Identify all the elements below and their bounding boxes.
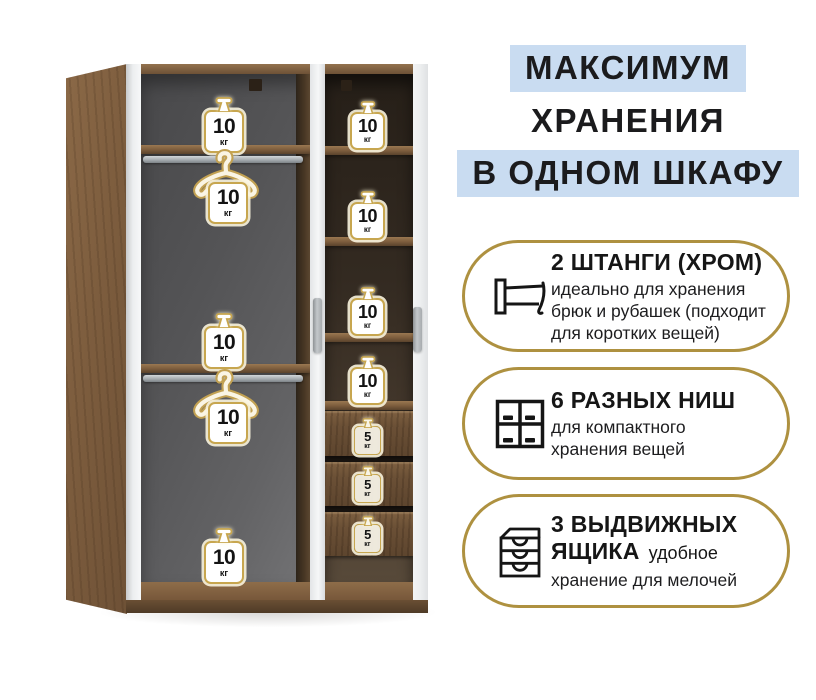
weight-capacity-label: 10кг <box>204 528 244 584</box>
hinge <box>341 80 352 91</box>
weight-unit: кг <box>224 208 232 218</box>
weight-value: 5 <box>364 479 371 491</box>
title-line-3: В ОДНОМ ШКАФУ <box>457 150 798 197</box>
feature-badge-niches: 6 РАЗНЫХ НИШ для компактного хранения ве… <box>462 367 790 480</box>
weight-value: 10 <box>358 304 377 321</box>
weight-knob-icon <box>359 418 377 428</box>
weight-capacity-label: 10кг <box>350 101 385 150</box>
weight-knob-icon <box>210 97 238 112</box>
wood-top-band <box>325 64 413 74</box>
weight-value: 10 <box>358 373 377 390</box>
page-title: МАКСИМУМ ХРАНЕНИЯ В ОДНОМ ШКАФУ <box>448 45 808 206</box>
weight-capacity-label: 10кг <box>350 356 385 405</box>
weight-unit: кг <box>364 443 370 451</box>
weight-knob-icon <box>359 466 377 476</box>
weight-value: 10 <box>217 188 239 208</box>
weight-value: 10 <box>358 208 377 225</box>
weight-knob-icon <box>356 356 380 369</box>
hanger-weight-label: 10кг <box>191 149 261 239</box>
weight-value: 10 <box>213 117 235 137</box>
feature-desc-inline: удобное <box>649 543 718 563</box>
feature-badge-rails: 2 ШТАНГИ (ХРОМ) идеально для хранения бр… <box>462 240 790 352</box>
weight-knob-icon <box>356 287 380 300</box>
weight-knob-icon <box>210 313 238 328</box>
hanger-weight-label: 10кг <box>191 369 261 459</box>
weight-unit: кг <box>220 568 228 578</box>
weight-unit: кг <box>364 390 371 399</box>
wardrobe-base <box>126 600 428 613</box>
weight-value: 10 <box>213 548 235 568</box>
feature-badge-drawers: 3 ВЫДВИЖНЫХ ЯЩИКАудобное хранение для ме… <box>462 494 790 608</box>
wardrobe-floor <box>325 582 413 600</box>
weight-unit: кг <box>220 137 228 147</box>
door-handle <box>313 298 322 353</box>
wardrobe-infographic: 10кг 10кг 10кг <box>0 0 816 700</box>
weight-unit: кг <box>364 491 370 499</box>
weight-value: 5 <box>364 529 371 541</box>
weight-knob-icon <box>356 101 380 114</box>
feature-title-line2: ЯЩИКАудобное <box>551 538 771 567</box>
feature-title-bold: ЯЩИКА <box>551 538 640 564</box>
weight-value: 10 <box>217 408 239 428</box>
drawer-weight-label: 5кг <box>354 418 381 455</box>
weight-unit: кг <box>364 135 371 144</box>
feature-desc-line: для компактного <box>551 416 771 438</box>
weight-capacity-label: 10кг <box>350 191 385 240</box>
clothes-rail-icon <box>489 273 551 319</box>
drawer-weight-label: 5кг <box>354 466 381 503</box>
weight-unit: кг <box>364 321 371 330</box>
weight-capacity-label: 10кг <box>204 97 244 153</box>
title-line-2: ХРАНЕНИЯ <box>448 101 808 141</box>
drawer-weight-label: 5кг <box>354 516 381 553</box>
weight-unit: кг <box>220 353 228 363</box>
feature-desc-line: для коротких вещей) <box>551 322 771 344</box>
weight-capacity-label: 10кг <box>204 313 244 369</box>
drawer-unit-icon <box>489 523 551 579</box>
weight-capacity-label: 10кг <box>350 287 385 336</box>
feature-desc-line: идеально для хранения <box>551 278 771 300</box>
wardrobe-floor <box>141 582 310 600</box>
feature-desc-line: хранение для мелочей <box>551 569 771 591</box>
door-handle <box>413 307 422 352</box>
weight-unit: кг <box>364 541 370 549</box>
weight-knob-icon <box>210 528 238 543</box>
title-line-1: МАКСИМУМ <box>510 45 746 92</box>
weight-value: 5 <box>364 431 371 443</box>
weight-knob-icon <box>356 191 380 204</box>
hinge <box>249 79 262 91</box>
feature-title: 6 РАЗНЫХ НИШ <box>551 387 771 414</box>
weight-knob-icon <box>359 516 377 526</box>
open-door-edge-left <box>126 64 141 613</box>
feature-title: 2 ШТАНГИ (ХРОМ) <box>551 249 771 276</box>
feature-title-line1: 3 ВЫДВИЖНЫХ <box>551 511 771 538</box>
wardrobe-side-panel <box>66 64 127 614</box>
wood-top-band <box>141 64 310 74</box>
weight-unit: кг <box>224 428 232 438</box>
wardrobe-niches-icon <box>489 399 551 449</box>
feature-desc-line: брюк и рубашек (подходит <box>551 300 771 322</box>
weight-unit: кг <box>364 225 371 234</box>
feature-desc-line: хранения вещей <box>551 438 771 460</box>
weight-value: 10 <box>213 333 235 353</box>
weight-value: 10 <box>358 118 377 135</box>
